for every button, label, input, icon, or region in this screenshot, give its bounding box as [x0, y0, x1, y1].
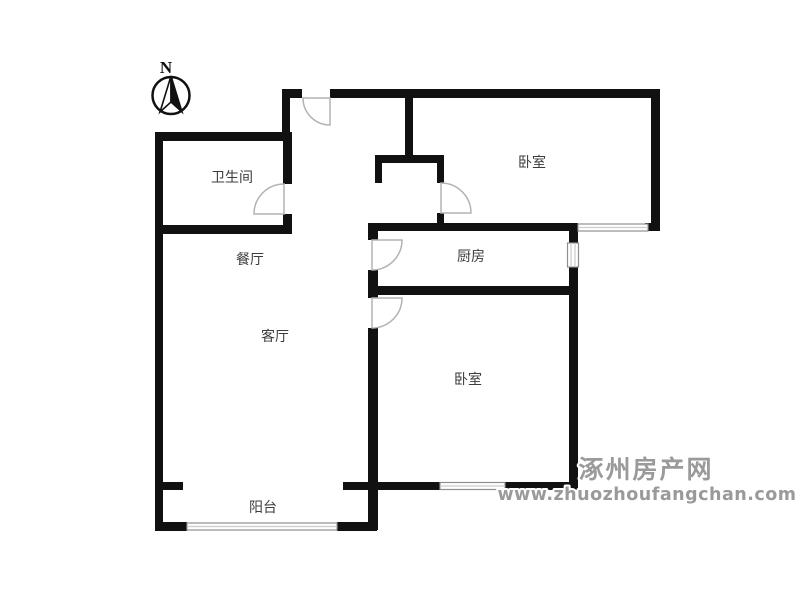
wall-top-main-seg	[330, 89, 660, 98]
wall-balcony-left-stub	[155, 482, 183, 490]
wall-balcony-bottom-left	[155, 522, 187, 531]
wall-balcony-bottom-right	[337, 522, 377, 531]
entry-door-swing	[303, 98, 330, 125]
watermark-site-url: www.zhuozhoufangchan.com	[497, 485, 796, 505]
bathroom-door-swing	[254, 184, 284, 214]
wall-bathroom-top	[155, 132, 292, 141]
compass-needle-left-icon	[160, 76, 171, 112]
kitchen-door-swing	[372, 240, 402, 270]
wall-bedroom1-bottom-kitchen-top	[368, 223, 578, 231]
bedroom1-door-swing	[441, 183, 471, 213]
watermark: 涿州房产网 涿州房产网 www.zhuozhoufangchan.com www…	[497, 455, 796, 505]
north-compass: N	[153, 58, 190, 114]
wall-bathroom-bottom	[155, 225, 292, 234]
watermark-site-name: 涿州房产网	[578, 455, 713, 484]
floor-plan-svg: N 卫生间 餐厅 客厅 厨房 卧室 卧室 阳台 涿州房产网 涿州房产网 www.…	[0, 0, 800, 600]
wall-bedroom2-bottom-left	[343, 482, 440, 490]
window-bedroom2-bottom	[440, 483, 505, 490]
wall-divider-a	[368, 231, 378, 240]
balcony-label: 阳台	[249, 500, 277, 516]
window-balcony-bottom	[187, 523, 337, 530]
compass-north-letter: N	[160, 58, 173, 77]
wall-kitchen-bottom	[372, 286, 578, 295]
kitchen-label: 厨房	[457, 249, 485, 265]
wall-right-kitchen-upper	[569, 231, 578, 243]
wall-right-mid	[569, 267, 578, 482]
window-bedroom1-bottom	[578, 224, 648, 231]
living-label: 客厅	[261, 328, 289, 345]
wall-divider-long	[368, 328, 378, 530]
bedroom-bottom-label: 卧室	[454, 371, 482, 388]
wall-hall-bedroom1-divider	[405, 98, 413, 163]
wall-bedroom1-right	[651, 89, 660, 231]
wall-bathroom-door-stub	[283, 214, 292, 225]
wall-left-exterior	[155, 132, 163, 530]
bedroom2-door-swing	[372, 298, 402, 328]
dining-label: 餐厅	[236, 252, 264, 268]
wall-niche-right	[437, 163, 444, 183]
compass-needle-right-icon	[171, 76, 182, 112]
window-kitchen-right	[568, 243, 579, 267]
bedroom-top-label: 卧室	[518, 154, 546, 171]
wall-niche-top	[375, 155, 444, 163]
bathroom-label: 卫生间	[211, 170, 253, 186]
floor-plan-page: N 卫生间 餐厅 客厅 厨房 卧室 卧室 阳台 涿州房产网 涿州房产网 www.…	[0, 0, 800, 600]
wall-niche-left	[375, 163, 382, 183]
wall-bathroom-right-upper	[283, 141, 292, 184]
